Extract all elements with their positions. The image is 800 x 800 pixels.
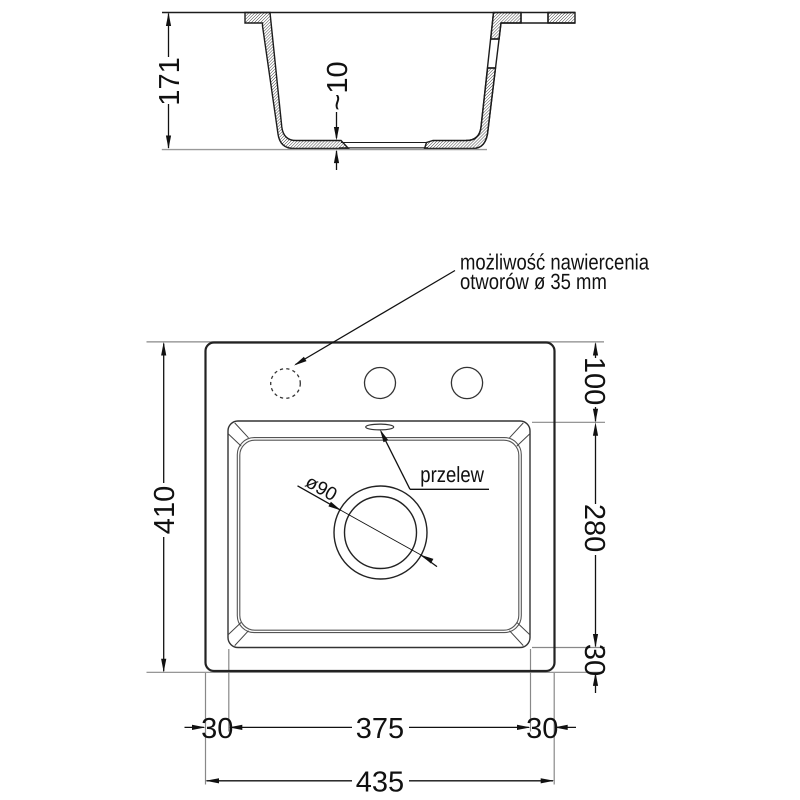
svg-text:100: 100	[578, 357, 610, 405]
svg-text:30: 30	[526, 713, 558, 745]
svg-text:~10: ~10	[322, 61, 354, 110]
svg-text:30: 30	[201, 713, 233, 745]
svg-text:435: 435	[356, 767, 404, 799]
svg-text:410: 410	[149, 486, 181, 534]
svg-text:30: 30	[578, 644, 610, 676]
svg-text:otworów ø 35 mm: otworów ø 35 mm	[460, 269, 607, 294]
svg-text:375: 375	[356, 713, 404, 745]
svg-text:280: 280	[578, 504, 610, 552]
svg-text:171: 171	[154, 57, 186, 105]
svg-text:przelew: przelew	[420, 462, 484, 487]
